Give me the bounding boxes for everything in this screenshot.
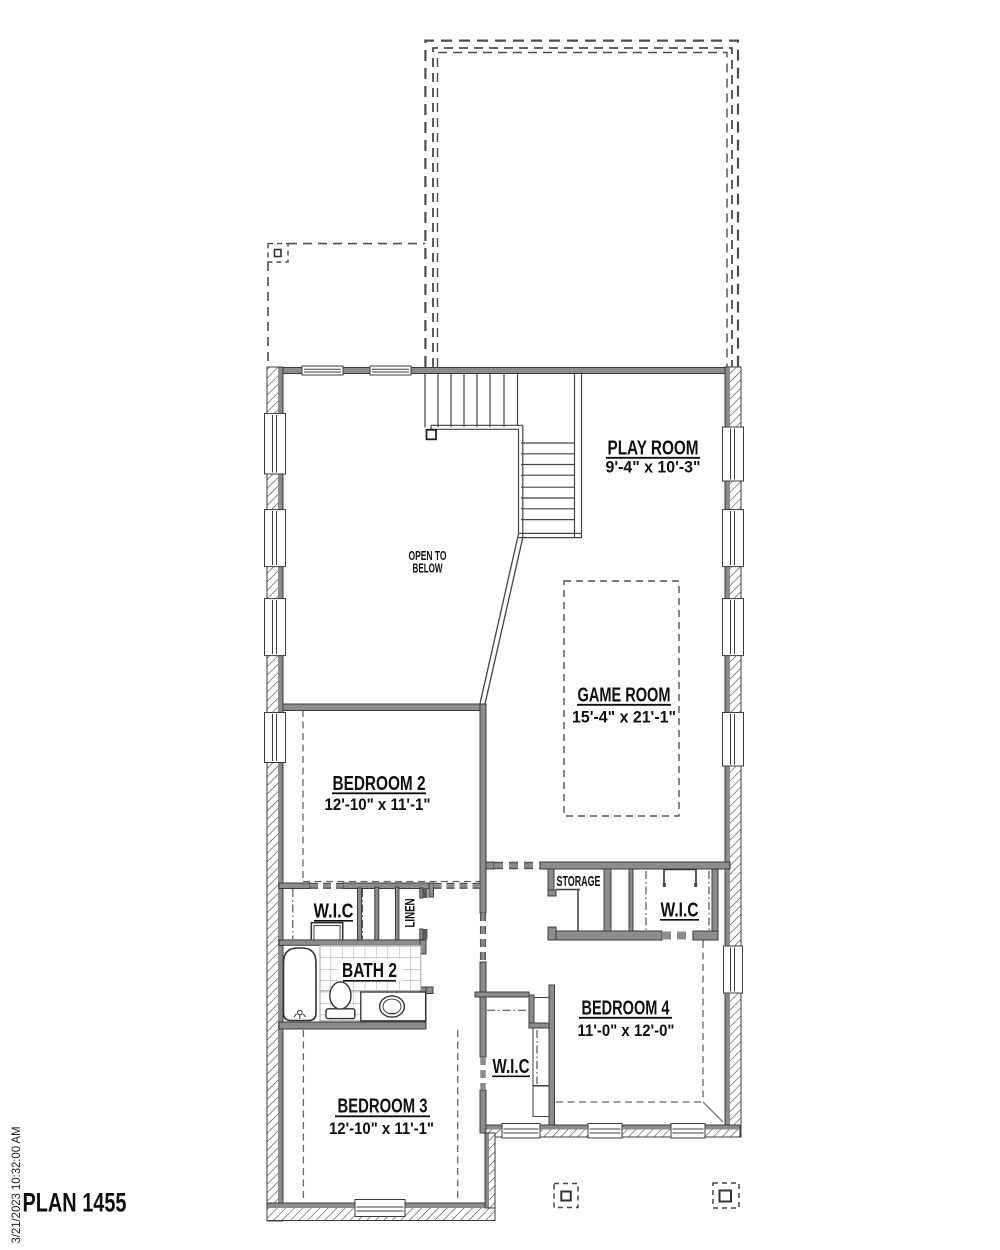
svg-text:12'-10" x 11'-1": 12'-10" x 11'-1" (329, 1119, 434, 1138)
svg-text:GAME ROOM: GAME ROOM (578, 685, 671, 707)
svg-text:PLAN 1455: PLAN 1455 (23, 1188, 127, 1218)
svg-text:9'-4" x 10'-3": 9'-4" x 10'-3" (606, 458, 701, 477)
svg-text:W.I.C: W.I.C (493, 1056, 530, 1078)
svg-text:15'-4" x 21'-1": 15'-4" x 21'-1" (572, 708, 676, 727)
svg-text:BEDROOM 2: BEDROOM 2 (333, 773, 426, 795)
svg-text:BEDROOM 3: BEDROOM 3 (338, 1096, 428, 1118)
svg-text:W.I.C: W.I.C (661, 900, 699, 922)
svg-text:LINEN: LINEN (402, 899, 418, 928)
svg-text:PLAY ROOM: PLAY ROOM (608, 438, 699, 460)
svg-text:3/21/2023 10:32:00 AM: 3/21/2023 10:32:00 AM (9, 1127, 23, 1244)
svg-text:BELOW: BELOW (413, 561, 443, 576)
svg-text:12'-10" x 11'-1": 12'-10" x 11'-1" (325, 795, 431, 814)
svg-text:W.I.C: W.I.C (314, 901, 354, 923)
svg-text:BEDROOM 4: BEDROOM 4 (582, 998, 671, 1020)
svg-text:STORAGE: STORAGE (557, 873, 601, 890)
svg-text:BATH 2: BATH 2 (342, 960, 397, 982)
svg-text:11'-0" x 12'-0": 11'-0" x 12'-0" (578, 1021, 675, 1040)
